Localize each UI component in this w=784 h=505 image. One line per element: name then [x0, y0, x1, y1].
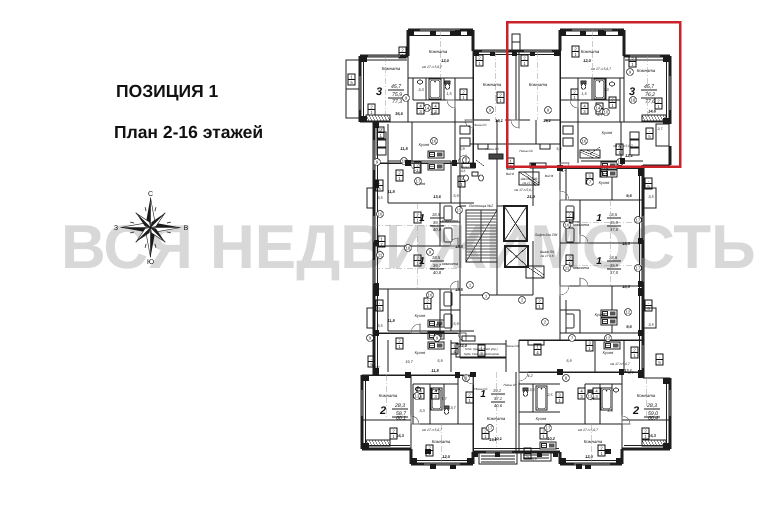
svg-text:17: 17	[416, 179, 421, 184]
svg-text:см 17 п.5,6,7: см 17 п.5,6,7	[422, 428, 442, 432]
svg-text:13: 13	[588, 394, 593, 399]
svg-text:13,6: 13,6	[433, 194, 442, 199]
svg-text:77,6: 77,6	[645, 99, 655, 105]
svg-text:3,6: 3,6	[529, 388, 535, 392]
svg-text:39,7: 39,7	[433, 220, 442, 225]
svg-text:10,2: 10,2	[547, 436, 556, 441]
svg-text:39,7: 39,7	[433, 263, 442, 268]
svg-text:см 17 п.5: см 17 п.5	[522, 181, 535, 185]
svg-text:Комната: Комната	[637, 68, 656, 73]
svg-text:17: 17	[546, 426, 551, 431]
svg-text:60,4: 60,4	[648, 416, 658, 422]
svg-text:19,7: 19,7	[405, 360, 413, 364]
svg-text:18,5: 18,5	[455, 244, 464, 249]
svg-text:12,0: 12,0	[583, 58, 592, 63]
svg-text:36,6: 36,6	[395, 111, 404, 116]
svg-text:комната: комната	[442, 262, 458, 266]
svg-text:5,9: 5,9	[566, 359, 572, 363]
svg-text:Комната: Комната	[429, 49, 448, 54]
svg-text:3,3: 3,3	[418, 88, 424, 92]
svg-text:3,7: 3,7	[450, 406, 456, 410]
svg-text:11,8: 11,8	[387, 318, 395, 323]
svg-text:Ниша СА: Ниша СА	[505, 344, 518, 348]
svg-text:1: 1	[596, 256, 602, 267]
svg-text:9,6: 9,6	[626, 193, 632, 198]
svg-text:16: 16	[432, 139, 437, 144]
svg-text:19,1: 19,1	[543, 118, 552, 123]
svg-text:5,9: 5,9	[556, 147, 562, 151]
svg-text:18: 18	[406, 246, 411, 251]
svg-text:Комната: Комната	[581, 49, 600, 54]
svg-text:см 17 п.5,6,7: см 17 п.5,6,7	[514, 188, 534, 192]
svg-text:10: 10	[378, 212, 383, 217]
svg-text:18,5: 18,5	[622, 284, 631, 289]
svg-text:12,0: 12,0	[585, 454, 594, 459]
svg-text:Вид В: Вид В	[545, 174, 553, 178]
svg-text:18,5: 18,5	[432, 212, 441, 217]
svg-text:12,0: 12,0	[441, 58, 450, 63]
svg-text:19,1: 19,1	[495, 118, 504, 123]
svg-text:1: 1	[596, 213, 602, 224]
svg-text:3,3: 3,3	[603, 88, 609, 92]
svg-text:10: 10	[604, 110, 609, 115]
svg-text:3,5: 3,5	[648, 323, 654, 327]
svg-text:3,5: 3,5	[377, 324, 383, 328]
svg-text:45,7: 45,7	[391, 84, 402, 90]
svg-text:10: 10	[565, 223, 570, 228]
svg-text:2: 2	[379, 405, 386, 417]
svg-text:3,3: 3,3	[419, 409, 425, 413]
svg-text:Кухня: Кухня	[419, 142, 431, 147]
svg-text:18,5: 18,5	[455, 287, 464, 292]
svg-text:18,5: 18,5	[622, 241, 631, 246]
svg-text:1: 1	[419, 213, 425, 224]
svg-text:ПОЗИЦИЯ 1: ПОЗИЦИЯ 1	[116, 81, 219, 101]
svg-text:Кухня: Кухня	[599, 180, 611, 185]
svg-text:37,0: 37,0	[610, 227, 619, 232]
svg-text:6,9: 6,9	[531, 457, 537, 461]
svg-text:1,5: 1,5	[446, 92, 452, 96]
svg-text:см 17 п.5,6,7: см 17 п.5,6,7	[422, 65, 442, 69]
svg-text:16: 16	[582, 139, 587, 144]
svg-text:5,9: 5,9	[453, 322, 459, 326]
svg-text:11,8: 11,8	[387, 189, 395, 194]
svg-text:21,9: 21,9	[526, 194, 536, 199]
svg-text:11: 11	[565, 266, 570, 271]
svg-text:Ю: Ю	[147, 259, 154, 266]
svg-text:28,3: 28,3	[646, 403, 657, 409]
svg-text:76,2: 76,2	[645, 92, 655, 98]
svg-text:40,8: 40,8	[433, 227, 442, 232]
svg-text:45,7: 45,7	[644, 84, 655, 90]
svg-text:З: З	[114, 225, 118, 232]
svg-text:В: В	[184, 225, 189, 232]
svg-text:Ниша 3Л: Ниша 3Л	[504, 383, 518, 387]
svg-text:Комната: Комната	[529, 82, 548, 87]
svg-text:Ниша СС: Ниша СС	[474, 387, 488, 391]
svg-text:Кухня: Кухня	[415, 313, 427, 318]
svg-text:Ниша СА: Ниша СА	[519, 149, 532, 153]
svg-text:Комната: Комната	[584, 439, 603, 444]
svg-text:12,1: 12,1	[624, 368, 633, 373]
svg-text:3,5: 3,5	[648, 195, 654, 199]
svg-text:С: С	[148, 191, 153, 198]
svg-text:5,9: 5,9	[453, 194, 459, 198]
svg-text:Комната: Комната	[432, 439, 451, 444]
svg-text:12,1: 12,1	[625, 153, 634, 158]
svg-text:75,9: 75,9	[392, 92, 402, 98]
svg-text:13,6: 13,6	[433, 323, 442, 328]
svg-text:12: 12	[606, 336, 611, 341]
svg-text:3: 3	[629, 86, 635, 98]
svg-text:Ниша СС: Ниша СС	[473, 123, 487, 127]
svg-text:9,6: 9,6	[626, 324, 632, 329]
svg-text:35,9: 35,9	[610, 263, 619, 268]
svg-text:10: 10	[428, 293, 433, 298]
svg-text:комната: комната	[442, 219, 458, 223]
svg-text:см 17 п.5,6,7: см 17 п.5,6,7	[591, 67, 611, 71]
svg-text:12,0: 12,0	[442, 454, 451, 459]
svg-text:Комната: Комната	[379, 393, 398, 398]
svg-text:Кухня: Кухня	[415, 350, 427, 355]
svg-text:40,8: 40,8	[433, 270, 442, 275]
svg-text:2,5: 2,5	[547, 393, 553, 397]
svg-text:см 17 п.5: см 17 п.5	[540, 254, 553, 258]
svg-text:10,1: 10,1	[494, 436, 503, 441]
svg-text:комната: комната	[573, 266, 589, 270]
svg-text:План 2-16 этажей: План 2-16 этажей	[114, 122, 263, 142]
svg-text:Комната: Комната	[382, 66, 401, 71]
svg-text:18,5: 18,5	[432, 255, 441, 260]
svg-text:Кухня: Кухня	[603, 350, 615, 355]
svg-text:Вид Б: Вид Б	[506, 172, 514, 176]
svg-text:Кухня: Кухня	[536, 416, 548, 421]
svg-text:19,1: 19,1	[493, 388, 501, 393]
svg-text:37,1: 37,1	[494, 396, 502, 401]
svg-text:60,1: 60,1	[396, 416, 406, 422]
svg-text:2: 2	[632, 405, 639, 417]
svg-text:17: 17	[636, 266, 641, 271]
svg-text:3,6: 3,6	[461, 169, 466, 173]
svg-text:28,3: 28,3	[394, 403, 405, 409]
svg-text:35,9: 35,9	[610, 220, 619, 225]
svg-text:11,8: 11,8	[431, 368, 439, 373]
svg-text:3: 3	[376, 86, 382, 98]
svg-text:Кухня: Кухня	[595, 312, 607, 317]
svg-text:Комната: Комната	[637, 393, 656, 398]
svg-text:1: 1	[419, 256, 425, 267]
svg-text:11: 11	[378, 253, 383, 258]
svg-text:см 17 п.5,6,7: см 17 п.5,6,7	[610, 362, 630, 366]
svg-text:14: 14	[596, 106, 601, 111]
svg-text:15: 15	[457, 208, 462, 213]
svg-text:18: 18	[631, 98, 636, 103]
svg-text:5,9: 5,9	[459, 147, 465, 151]
svg-text:4,2: 4,2	[527, 374, 533, 378]
svg-text:5,9: 5,9	[437, 359, 443, 363]
svg-text:13: 13	[415, 394, 420, 399]
svg-text:Лестница №2: Лестница №2	[468, 204, 493, 208]
svg-text:77,3: 77,3	[392, 99, 402, 105]
svg-text:3,5: 3,5	[377, 196, 383, 200]
svg-text:12: 12	[626, 310, 631, 315]
svg-text:комната: комната	[573, 223, 589, 227]
svg-text:17: 17	[488, 426, 493, 431]
svg-text:1,5: 1,5	[581, 92, 587, 96]
svg-text:Лифт для ПМ: Лифт для ПМ	[534, 233, 558, 237]
svg-text:Комната: Комната	[487, 416, 506, 421]
svg-text:Комната: Комната	[483, 82, 502, 87]
svg-text:14: 14	[425, 106, 430, 111]
svg-text:Кухня: Кухня	[602, 130, 614, 135]
svg-text:40,6: 40,6	[494, 403, 503, 408]
svg-text:37,0: 37,0	[610, 270, 619, 275]
svg-text:см 17 п.5,6,7: см 17 п.5,6,7	[578, 428, 598, 432]
svg-text:11,8: 11,8	[400, 146, 408, 151]
